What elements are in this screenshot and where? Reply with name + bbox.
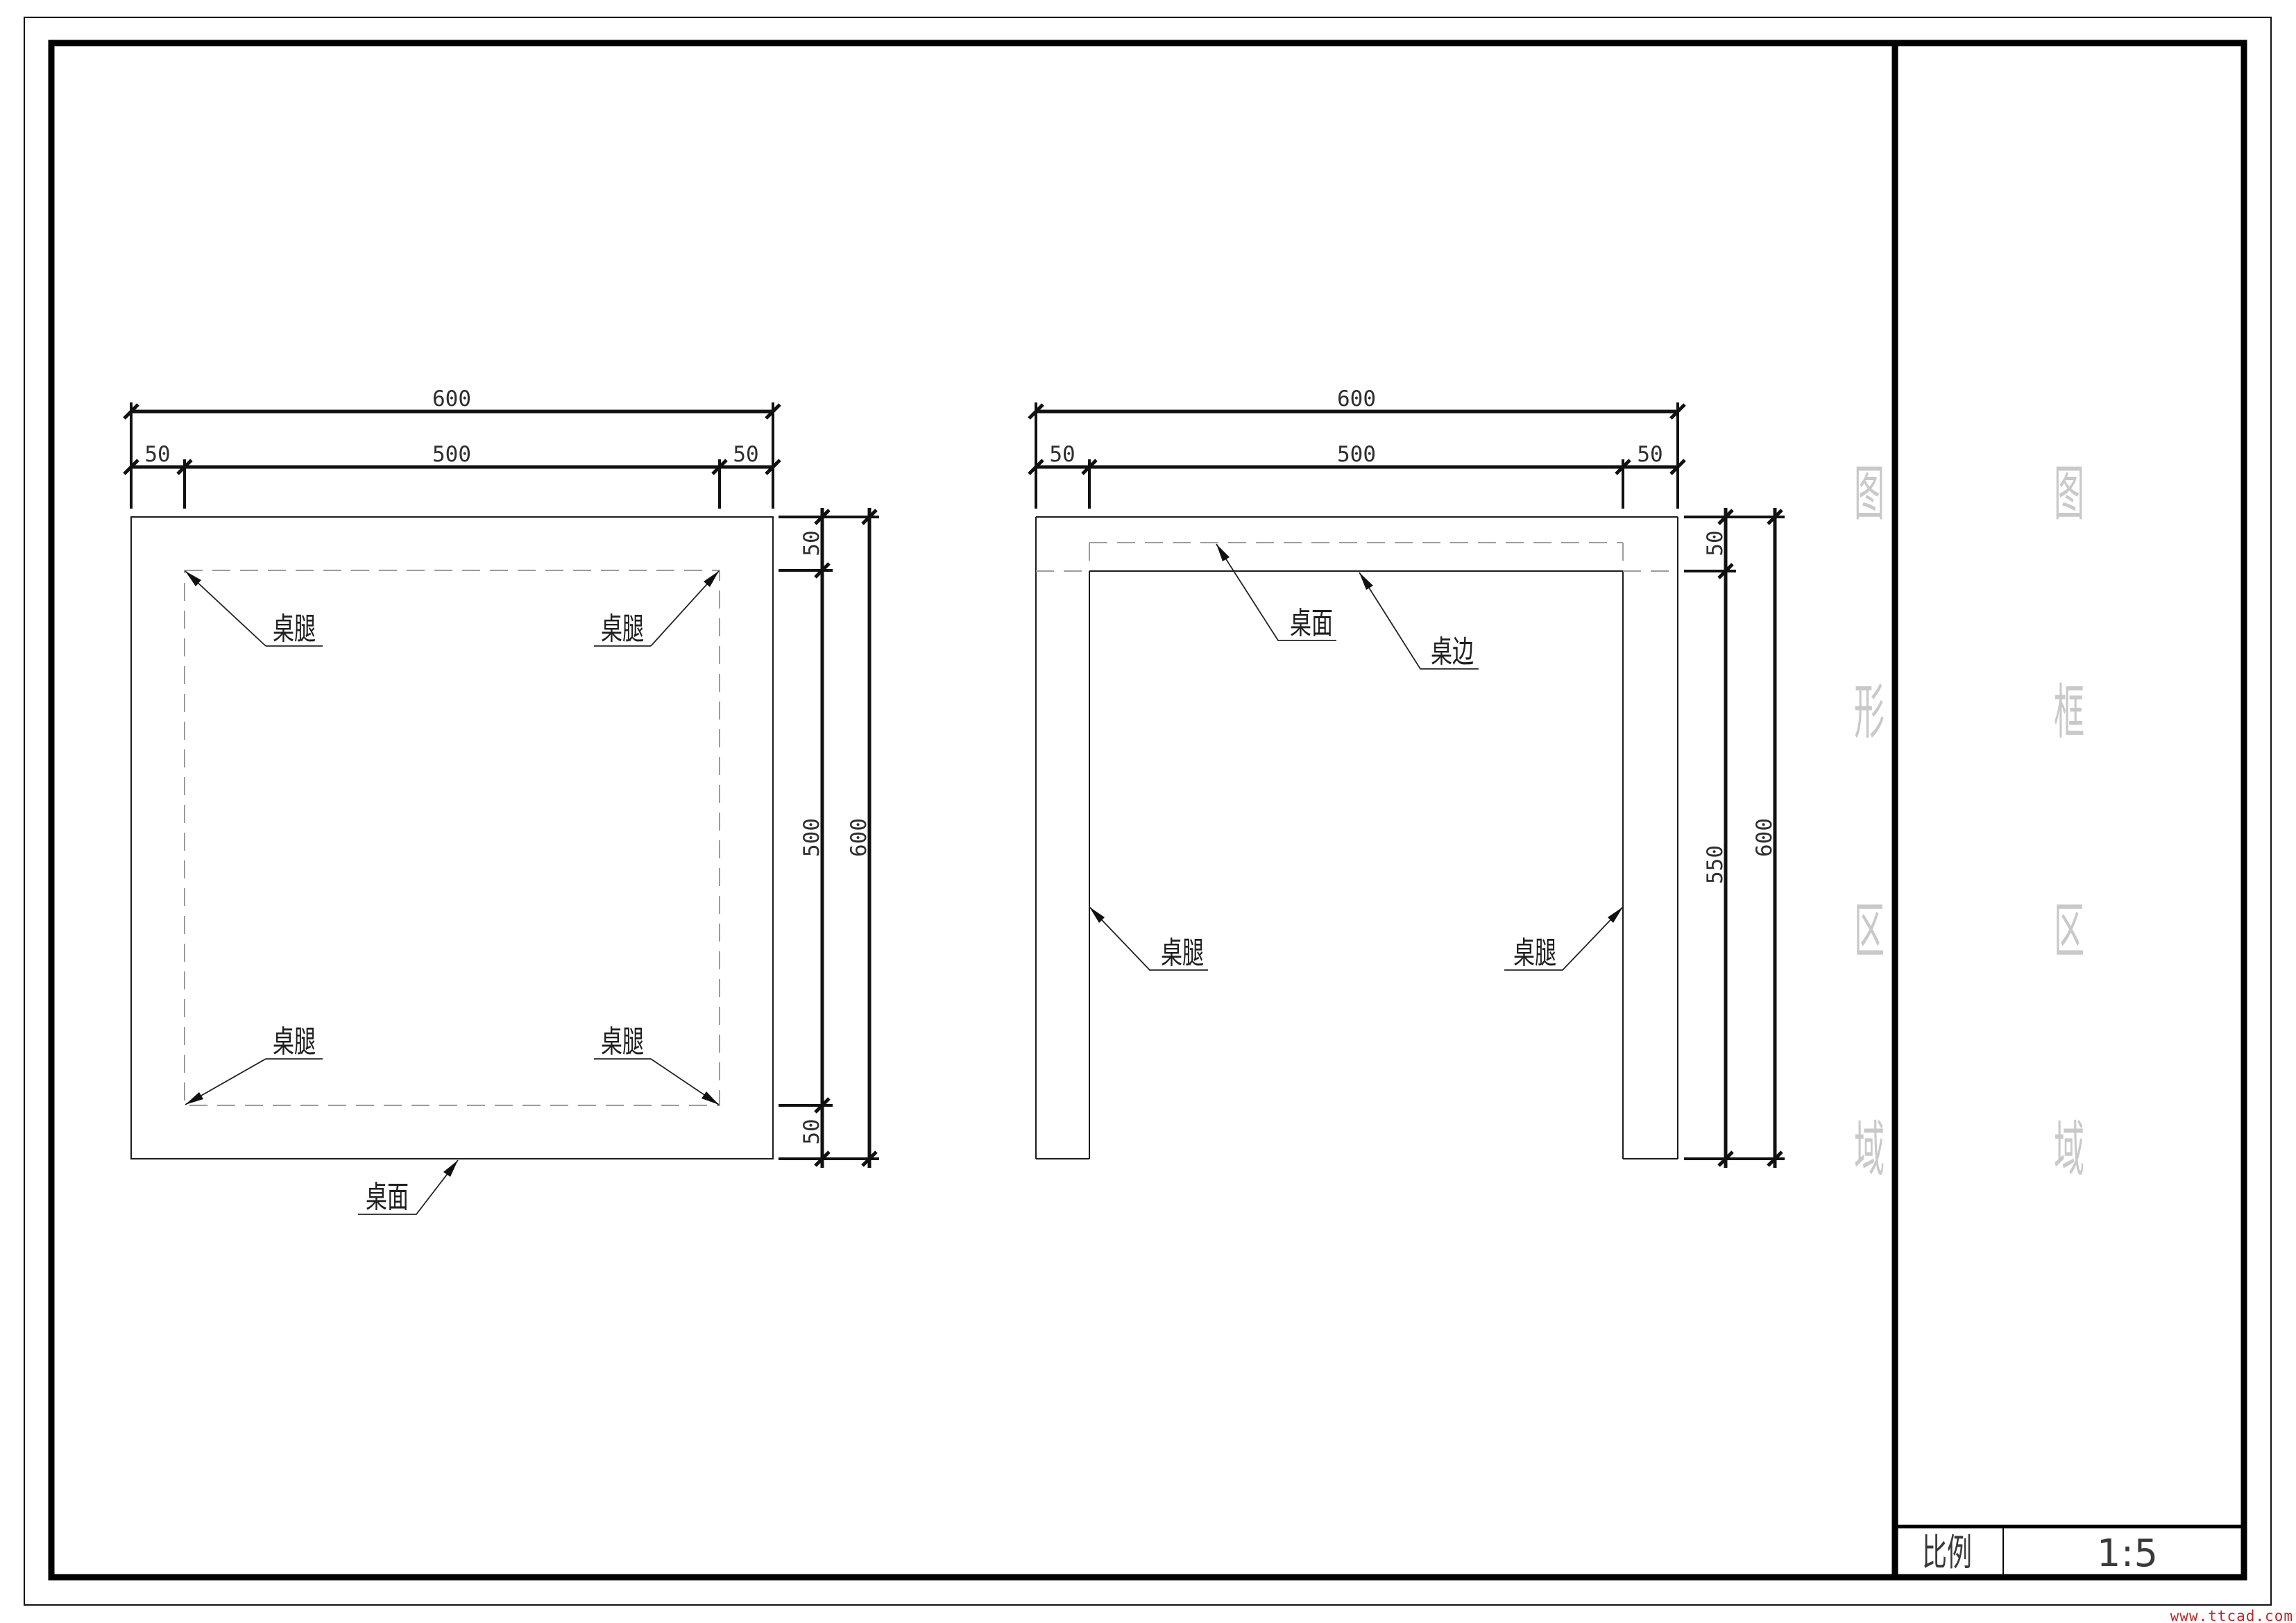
- leader-arrow-icon: [1359, 572, 1373, 590]
- leg-label: 桌腿: [1513, 935, 1556, 971]
- leader-arrow-icon: [185, 1092, 203, 1105]
- dim-text-total-height: 600: [1752, 818, 1777, 857]
- leg-label: 桌腿: [601, 611, 644, 647]
- watermark-frame-area-column: 图 框 区 域: [2054, 459, 2084, 1184]
- dim-text-total-width: 600: [1337, 386, 1376, 411]
- leg-label: 桌腿: [273, 1024, 316, 1060]
- watermark-char: 域: [2054, 1115, 2084, 1184]
- table-edge-label: 桌边: [1431, 634, 1474, 670]
- dim-text-left-leg: 50: [1049, 442, 1075, 467]
- dim-text-right-leg: 50: [1637, 442, 1663, 467]
- outer-border: [24, 17, 2271, 1605]
- watermark-char: 形: [1854, 678, 1885, 747]
- dim-text-total-height: 600: [847, 818, 871, 857]
- dim-text-total-width: 600: [432, 386, 471, 411]
- watermark-char: 域: [1854, 1115, 1885, 1184]
- dim-text-left-inset: 50: [144, 442, 170, 467]
- front-view: 600 50 500 50 50 550 600 桌面 桌边: [1029, 386, 1785, 1168]
- cad-page: 图 形 区 域 图 框 区 域 比例 1:5 www.ttcad.com 600: [0, 0, 2296, 1623]
- tabletop-label: 桌面: [1290, 606, 1333, 641]
- cad-drawing: 图 形 区 域 图 框 区 域 比例 1:5 www.ttcad.com 600: [0, 0, 2296, 1623]
- title-block: 比例 1:5: [1895, 1527, 2243, 1577]
- leg-label: 桌腿: [601, 1024, 644, 1060]
- dim-text-inner-height: 500: [799, 818, 824, 857]
- leader-arrow-icon: [701, 1091, 719, 1105]
- dim-text-bottom-inset: 50: [799, 1119, 824, 1144]
- dim-text-top-thickness: 50: [1703, 530, 1728, 556]
- dim-text-top-inset: 50: [799, 530, 824, 556]
- watermark-char: 区: [2054, 897, 2084, 966]
- dim-text-inner-width: 500: [1337, 442, 1376, 467]
- leg-label: 桌腿: [273, 611, 316, 647]
- scale-value: 1:5: [2097, 1531, 2158, 1575]
- dim-text-leg-height: 550: [1703, 845, 1728, 884]
- scale-label: 比例: [1922, 1531, 1972, 1574]
- watermark-char: 框: [2054, 678, 2084, 747]
- watermark-char: 区: [1854, 897, 1885, 966]
- watermark-drawing-area-column: 图 形 区 域: [1854, 459, 1885, 1184]
- website-watermark: www.ttcad.com: [2170, 1608, 2293, 1623]
- top-view: 600 50 500 50 50 500 50 600 桌腿: [124, 386, 879, 1215]
- leader-arrow-icon: [443, 1160, 458, 1177]
- dim-text-inner-width: 500: [432, 442, 471, 467]
- watermark-char: 图: [1854, 459, 1885, 529]
- tabletop-outline: [131, 517, 773, 1159]
- leg-label: 桌腿: [1161, 935, 1204, 971]
- tabletop-label: 桌面: [366, 1180, 409, 1215]
- dim-text-right-inset: 50: [733, 442, 758, 467]
- inner-frame: [51, 43, 2244, 1577]
- leader-arrow-icon: [1216, 544, 1230, 561]
- watermark-char: 图: [2054, 459, 2084, 529]
